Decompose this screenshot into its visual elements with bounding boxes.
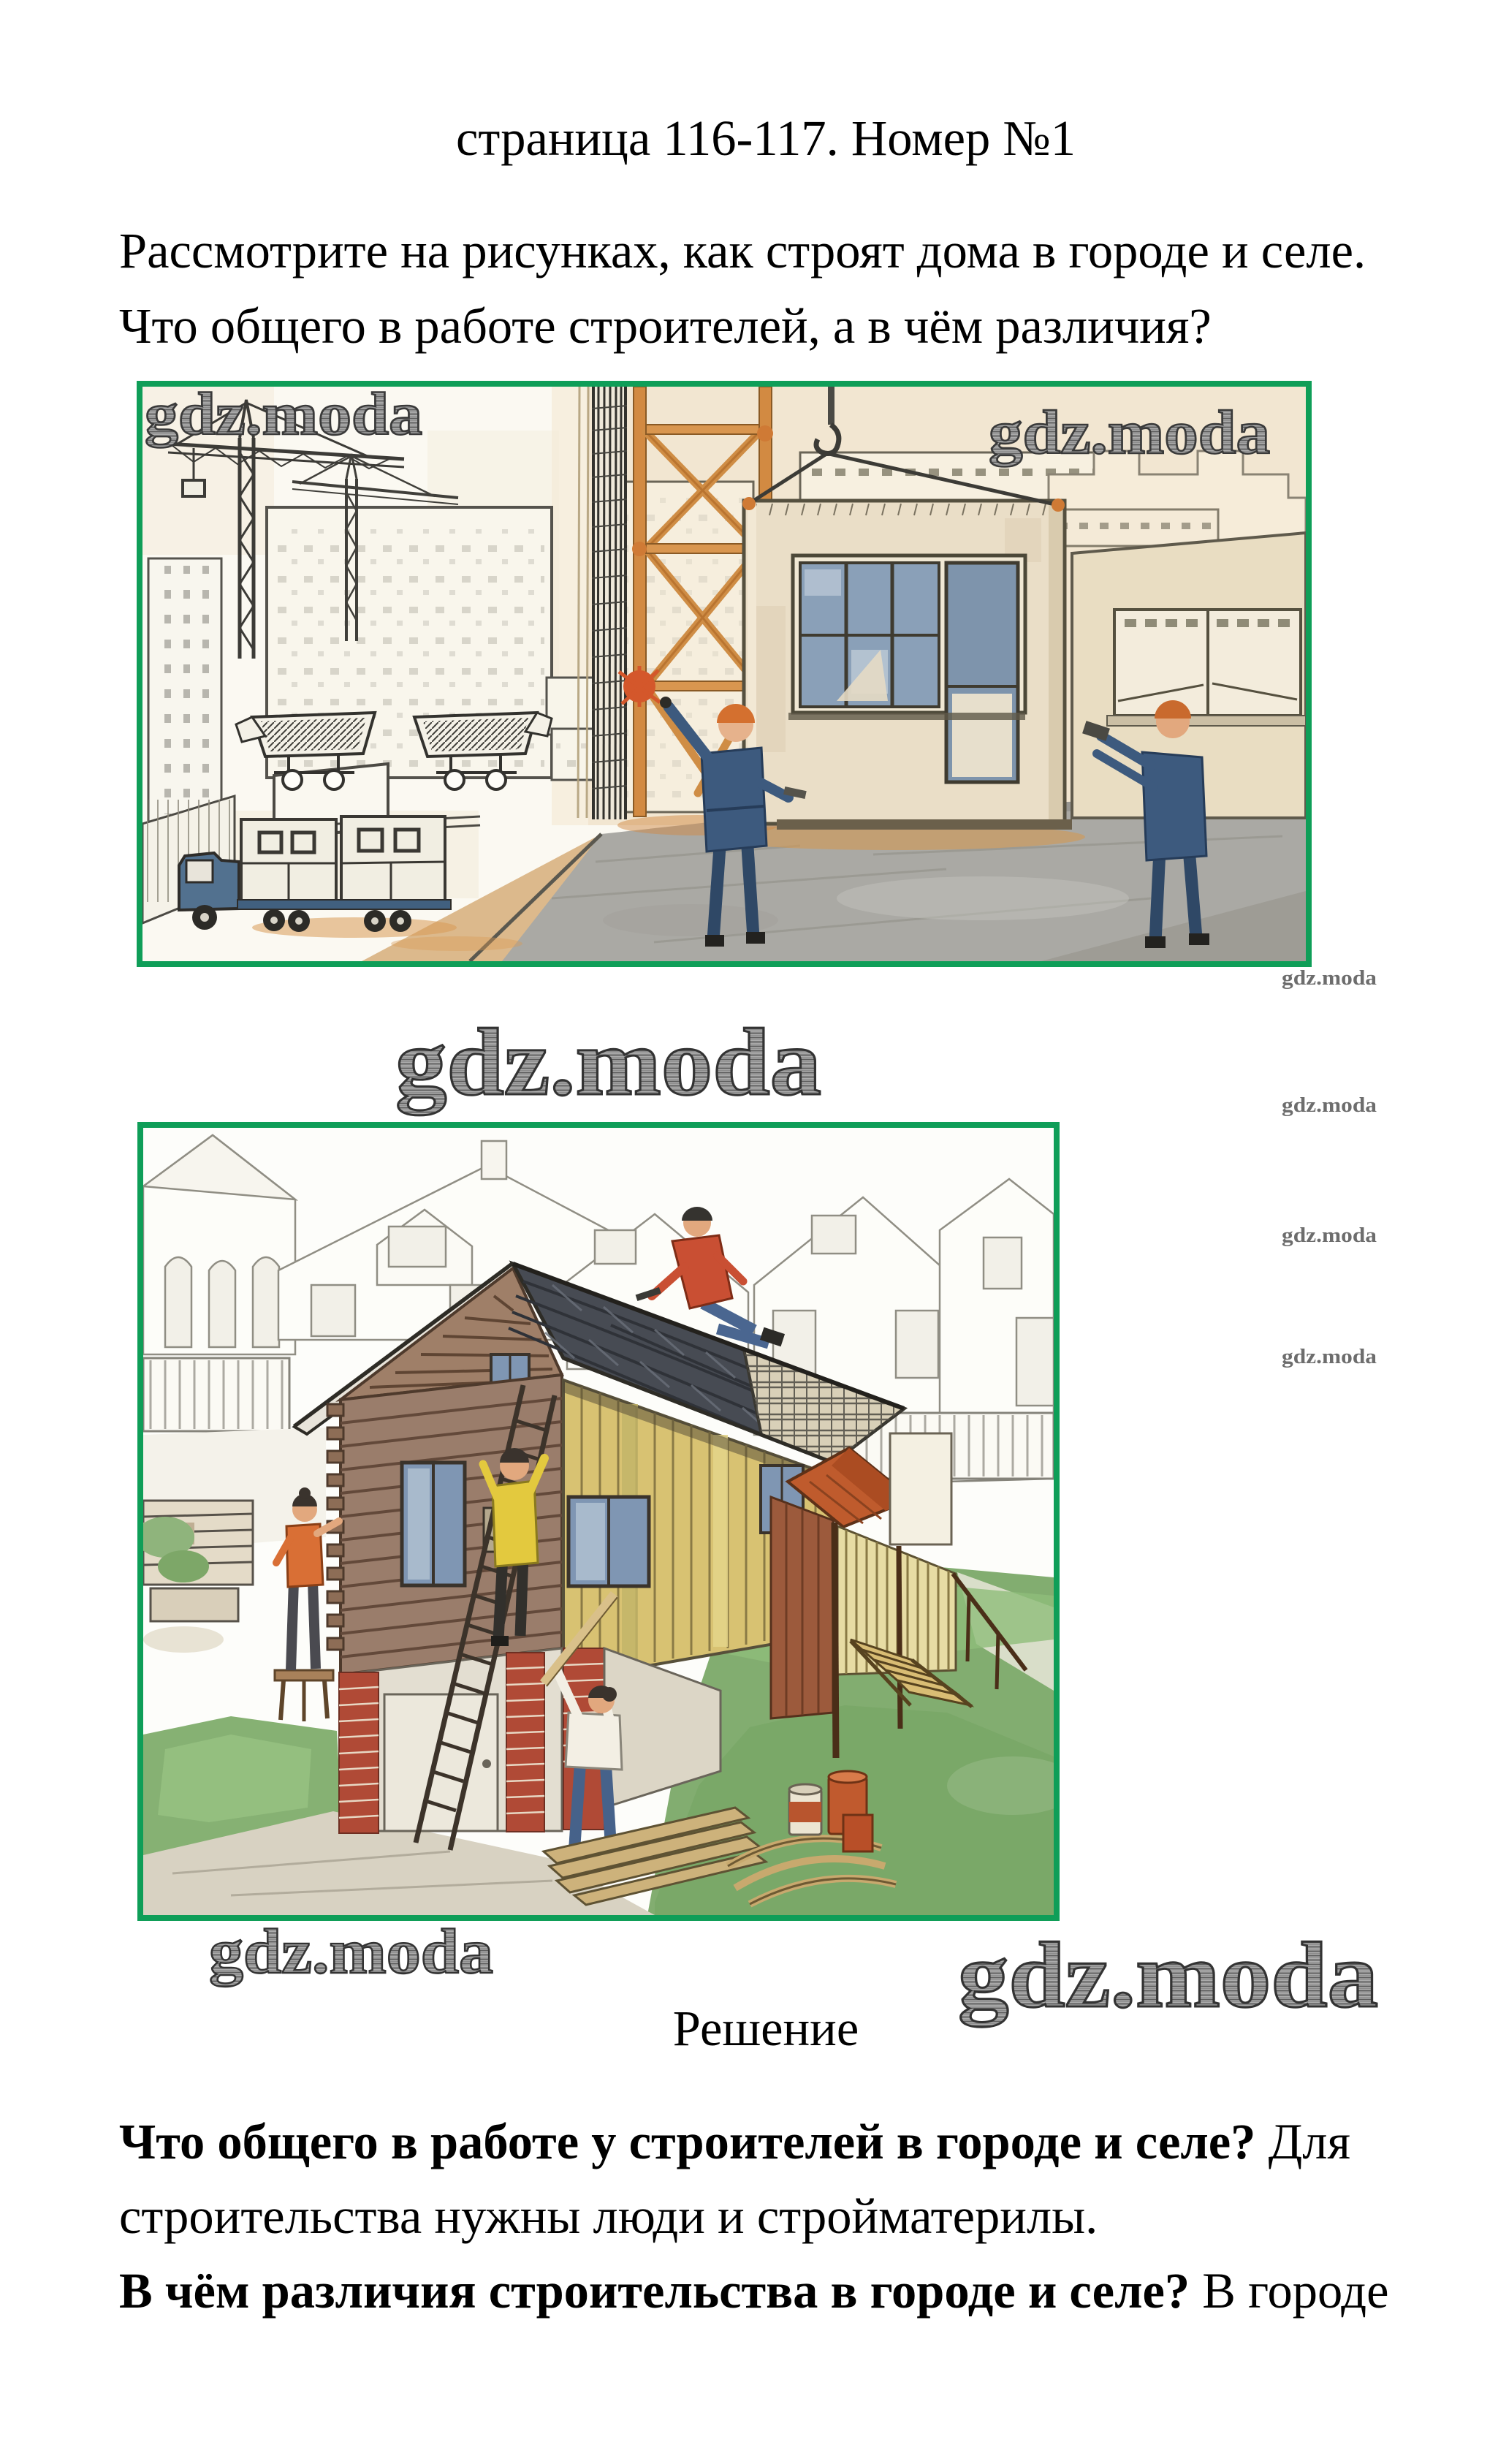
svg-text:gdz.moda: gdz.moda xyxy=(1282,966,1377,990)
svg-text:gdz.moda: gdz.moda xyxy=(1282,1093,1377,1117)
svg-text:gdz.moda: gdz.moda xyxy=(1282,1224,1377,1247)
svg-text:gdz.moda: gdz.moda xyxy=(1282,1345,1377,1368)
svg-text:gdz.moda: gdz.moda xyxy=(145,387,422,447)
svg-text:gdz.moda: gdz.moda xyxy=(989,398,1270,467)
svg-text:gdz.moda: gdz.moda xyxy=(395,1009,821,1115)
svg-text:gdz.moda: gdz.moda xyxy=(209,1916,493,1987)
